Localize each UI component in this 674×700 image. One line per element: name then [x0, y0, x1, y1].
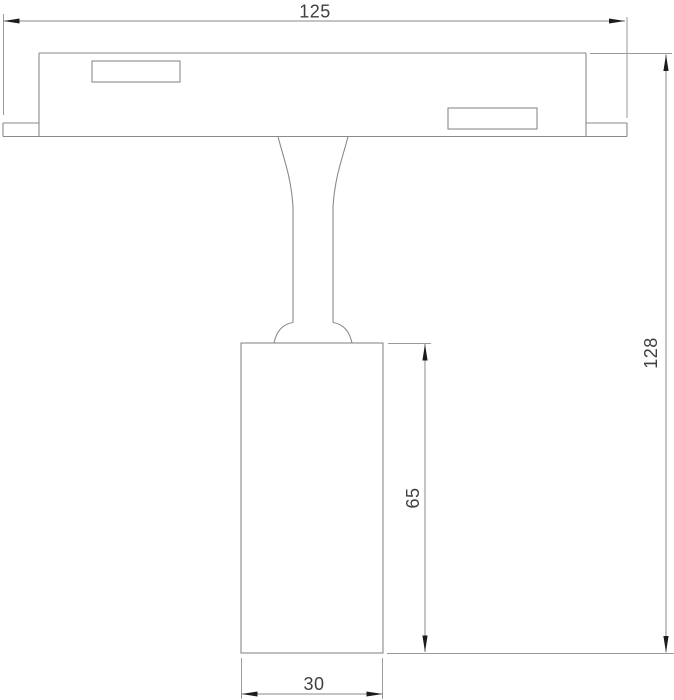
dimension-body-height: 65: [387, 344, 674, 654]
arrowhead-bottom: [663, 636, 668, 653]
arrowhead-left: [4, 19, 20, 24]
plate-left-tab: [3, 123, 39, 137]
technical-drawing: 125 128 65 30: [0, 0, 674, 700]
dimension-overall-width: 125: [4, 2, 628, 119]
arrowhead-left: [242, 692, 258, 697]
arrowhead-right: [367, 692, 383, 697]
ball-joint-right-arc: [333, 323, 352, 344]
stem-right-contour: [333, 137, 348, 323]
dimension-body-width: 30: [242, 658, 383, 699]
stem-left-contour: [278, 137, 293, 323]
dimension-label-overall-width: 125: [299, 2, 331, 22]
stem-neck: [278, 137, 348, 323]
ball-joint: [274, 323, 352, 344]
dimension-overall-height: 128: [590, 54, 672, 653]
spotlight-body: [241, 343, 383, 653]
ball-joint-left-arc: [274, 323, 293, 344]
arrowhead-bottom: [422, 636, 427, 653]
mounting-slot-left: [92, 61, 180, 82]
dimension-label-body-width: 30: [303, 674, 324, 694]
drawing-canvas: 125 128 65 30: [0, 0, 674, 700]
arrowhead-top: [663, 55, 668, 72]
dimension-label-body-height: 65: [403, 487, 423, 508]
arrowhead-right: [609, 19, 625, 24]
dimension-label-overall-height: 128: [641, 337, 661, 369]
mounting-slot-right: [448, 108, 537, 129]
arrowhead-top: [422, 344, 427, 361]
track-adapter-plate: [3, 53, 627, 137]
plate-right-tab: [586, 123, 627, 137]
